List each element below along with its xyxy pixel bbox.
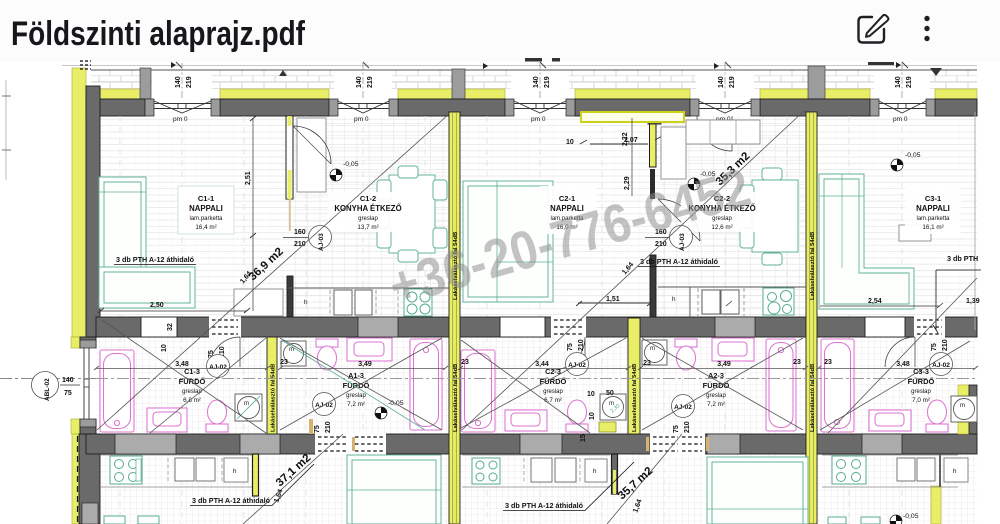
svg-text:3,49: 3,49 (717, 361, 731, 368)
svg-text:140: 140 (62, 377, 74, 384)
svg-text:-0,05: -0,05 (903, 513, 919, 520)
svg-text:pm 0: pm 0 (531, 116, 546, 123)
svg-text:pm 0: pm 0 (354, 116, 369, 123)
svg-text:C3-1: C3-1 (925, 194, 941, 203)
svg-text:23: 23 (280, 359, 288, 366)
svg-text:C1-2: C1-2 (360, 194, 376, 203)
svg-text:75: 75 (64, 390, 72, 397)
svg-text:AJ-02: AJ-02 (209, 364, 227, 371)
svg-text:3 db PTH A-12 áthidaló: 3 db PTH A-12 áthidaló (640, 257, 719, 266)
svg-text:15: 15 (580, 434, 587, 442)
svg-text:3 db PTH A-12 áthidaló: 3 db PTH A-12 áthidaló (116, 255, 195, 264)
svg-text:greslap: greslap (358, 216, 378, 222)
svg-text:pm 0: pm 0 (173, 116, 188, 123)
svg-text:219: 219 (186, 76, 193, 88)
svg-text:C2-1: C2-1 (559, 194, 575, 203)
svg-text:3 db PTH: 3 db PTH (947, 254, 978, 263)
svg-text:210: 210 (684, 421, 691, 433)
svg-text:7,0 m²: 7,0 m² (912, 397, 930, 404)
svg-text:219: 219 (367, 76, 374, 88)
svg-text:h: h (304, 299, 308, 306)
svg-text:140: 140 (356, 76, 363, 88)
svg-text:50: 50 (606, 390, 614, 397)
svg-text:75: 75 (314, 425, 321, 433)
svg-text:3,44: 3,44 (535, 361, 549, 368)
svg-text:NAPPALI: NAPPALI (916, 204, 950, 213)
svg-text:13,7 m²: 13,7 m² (357, 224, 378, 231)
svg-text:3,49: 3,49 (358, 361, 372, 368)
svg-text:160: 160 (294, 229, 306, 236)
svg-text:2,51: 2,51 (245, 171, 252, 185)
svg-text:Lakáselválasztó fal 54dB: Lakáselválasztó fal 54dB (632, 364, 638, 432)
svg-text:210: 210 (325, 421, 332, 433)
svg-text:10: 10 (566, 139, 574, 146)
svg-text:KONYHA ÉTKEZŐ: KONYHA ÉTKEZŐ (334, 204, 401, 213)
svg-text:7,2 m²: 7,2 m² (347, 401, 365, 408)
svg-text:greslap: greslap (346, 393, 366, 399)
svg-text:FÜRDŐ: FÜRDŐ (343, 381, 370, 390)
svg-text:greslap: greslap (543, 389, 563, 395)
svg-text:Lakáselválasztó fal 54dB: Lakáselválasztó fal 54dB (271, 364, 277, 432)
svg-text:Lakáselválasztó fal 54dB: Lakáselválasztó fal 54dB (453, 364, 459, 432)
svg-text:6,8 m²: 6,8 m² (183, 397, 201, 404)
svg-text:m: m (960, 403, 965, 409)
svg-text:1,51: 1,51 (606, 296, 620, 303)
svg-text:AJ-03: AJ-03 (318, 233, 325, 251)
svg-text:3,48: 3,48 (896, 361, 910, 368)
svg-text:210: 210 (942, 339, 949, 351)
svg-text:m: m (244, 401, 249, 407)
svg-text:pm 0: pm 0 (893, 116, 908, 123)
svg-text:2,54: 2,54 (868, 298, 882, 305)
svg-text:23: 23 (461, 359, 469, 366)
svg-text:75: 75 (673, 425, 680, 433)
svg-text:Lakáselválasztó fal 54dB: Lakáselválasztó fal 54dB (810, 364, 816, 432)
svg-text:2,29: 2,29 (624, 176, 631, 190)
svg-text:23: 23 (643, 360, 651, 367)
svg-text:m: m (289, 347, 294, 353)
svg-text:ABL-02: ABL-02 (44, 378, 51, 401)
svg-text:greslap: greslap (706, 393, 726, 399)
svg-text:AJ-02: AJ-02 (315, 402, 333, 409)
svg-text:10: 10 (589, 412, 596, 420)
svg-text:6,7 m²: 6,7 m² (544, 397, 562, 404)
svg-text:h: h (593, 468, 597, 475)
svg-text:Földszinti alaprajz.pdf: Földszinti alaprajz.pdf (11, 15, 306, 53)
svg-text:219: 219 (906, 76, 913, 88)
svg-text:C1-1: C1-1 (198, 194, 214, 203)
svg-text:-0,05: -0,05 (343, 161, 359, 168)
svg-text:219: 219 (544, 76, 551, 88)
svg-text:AJ-02: AJ-02 (932, 362, 950, 369)
svg-text:210: 210 (578, 339, 585, 351)
svg-text:h: h (953, 468, 957, 475)
svg-text:3 db PTH A-12 áthidaló: 3 db PTH A-12 áthidaló (192, 496, 271, 505)
svg-text:7,2 m²: 7,2 m² (707, 401, 725, 408)
svg-text:3 db PTH A-12 áthidaló: 3 db PTH A-12 áthidaló (505, 501, 584, 510)
svg-text:h: h (672, 296, 676, 303)
svg-text:219: 219 (729, 76, 736, 88)
svg-text:16,4 m²: 16,4 m² (195, 224, 216, 231)
svg-text:-0,05: -0,05 (905, 152, 921, 159)
svg-text:Lakáselválasztó fal 54dB: Lakáselválasztó fal 54dB (810, 232, 816, 300)
svg-text:10: 10 (161, 344, 168, 352)
svg-text:75: 75 (931, 343, 938, 351)
svg-text:140: 140 (895, 76, 902, 88)
svg-text:greslap: greslap (911, 389, 931, 395)
svg-text:140: 140 (718, 76, 725, 88)
svg-text:2,50: 2,50 (150, 302, 164, 309)
svg-text:h: h (233, 468, 237, 475)
svg-text:23: 23 (793, 359, 801, 366)
svg-text:23: 23 (824, 359, 832, 366)
svg-text:10: 10 (587, 391, 595, 398)
svg-text:16,1 m²: 16,1 m² (922, 224, 943, 231)
svg-text:3,48: 3,48 (175, 361, 189, 368)
svg-text:32: 32 (167, 323, 174, 331)
svg-text:140: 140 (175, 76, 182, 88)
svg-text:140: 140 (533, 76, 540, 88)
svg-text:1,39: 1,39 (966, 298, 980, 305)
svg-text:NAPPALI: NAPPALI (189, 204, 223, 213)
svg-text:2,07: 2,07 (624, 137, 638, 144)
svg-text:m: m (650, 346, 655, 352)
svg-text:lam.parketta: lam.parketta (916, 216, 950, 222)
svg-text:lam.parketta: lam.parketta (189, 216, 223, 222)
svg-text:75: 75 (567, 343, 574, 351)
